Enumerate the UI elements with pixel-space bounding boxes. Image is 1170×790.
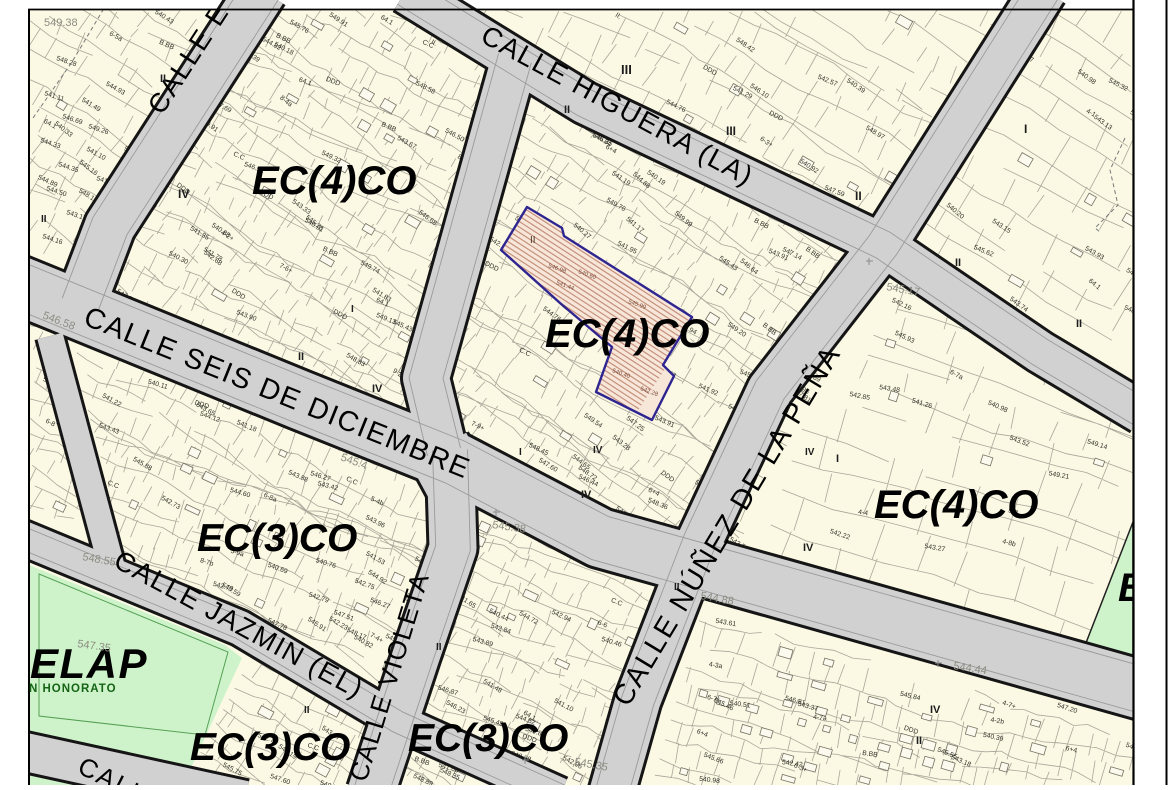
svg-text:IV: IV bbox=[803, 542, 814, 554]
svg-text:4-7a: 4-7a bbox=[813, 714, 827, 722]
svg-text:IV: IV bbox=[581, 489, 592, 501]
svg-text:EC(3)CO: EC(3)CO bbox=[190, 726, 350, 769]
svg-text:EC(4)CO: EC(4)CO bbox=[545, 312, 709, 356]
svg-text:EC(4)CO: EC(4)CO bbox=[252, 159, 416, 203]
svg-text:I: I bbox=[1024, 122, 1027, 136]
svg-text:III: III bbox=[726, 124, 736, 138]
svg-text:II: II bbox=[304, 705, 310, 716]
svg-text:I: I bbox=[836, 453, 839, 465]
svg-text:N HONORATO: N HONORATO bbox=[29, 683, 117, 695]
svg-text:I: I bbox=[519, 447, 522, 458]
svg-text:IV: IV bbox=[805, 447, 815, 458]
svg-text:II: II bbox=[855, 189, 862, 203]
svg-text:II: II bbox=[436, 642, 442, 653]
svg-text:III: III bbox=[621, 62, 632, 77]
svg-text:IV: IV bbox=[372, 383, 383, 395]
svg-text:I: I bbox=[351, 304, 354, 315]
svg-text:II: II bbox=[916, 735, 922, 747]
svg-text:II: II bbox=[41, 214, 47, 225]
svg-text:II: II bbox=[955, 257, 961, 269]
svg-text:549.38: 549.38 bbox=[44, 17, 78, 29]
svg-text:II: II bbox=[298, 351, 304, 363]
svg-text:II: II bbox=[530, 235, 536, 246]
svg-text:IV: IV bbox=[178, 187, 189, 201]
svg-text:EC(4)CO: EC(4)CO bbox=[874, 483, 1038, 527]
svg-text:IV: IV bbox=[593, 445, 603, 456]
svg-text:II: II bbox=[564, 104, 570, 116]
svg-text:II: II bbox=[160, 73, 166, 85]
svg-text:EC(3)CO: EC(3)CO bbox=[197, 517, 357, 560]
svg-text:II: II bbox=[674, 582, 680, 593]
svg-text:EC(3)CO: EC(3)CO bbox=[408, 717, 568, 760]
svg-text:II: II bbox=[1076, 318, 1082, 330]
svg-text:IV: IV bbox=[930, 704, 941, 716]
